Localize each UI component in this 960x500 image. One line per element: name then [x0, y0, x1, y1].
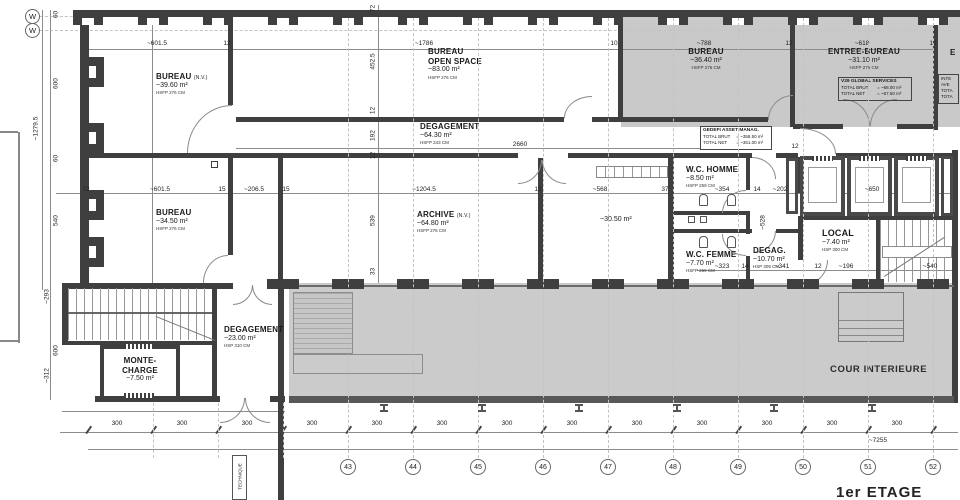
courtyard-south-wall [289, 396, 954, 403]
dim-label: 12 [814, 263, 821, 270]
grid-dashed-line [478, 18, 479, 458]
wall [228, 17, 233, 105]
dim-label: 33 [370, 252, 377, 292]
dim-label: 300 [892, 420, 903, 427]
dim-label: ~601.5 [150, 186, 170, 193]
pilaster [89, 237, 104, 267]
wall [672, 229, 752, 233]
elevator-car [808, 167, 837, 203]
dim-label: ~788 [697, 40, 712, 47]
room-area: ~7.50 m² [105, 375, 175, 383]
technique-room: TECHNIQUE [232, 455, 247, 500]
room-name: DEGAG. [753, 246, 786, 256]
wall [897, 124, 935, 129]
expansion-joint-marker [575, 404, 583, 412]
grid-bubble: 47 [600, 459, 616, 475]
toilet-icon [727, 236, 736, 248]
dim-label: ~202 [773, 186, 788, 193]
grid-dashed-line [413, 18, 414, 458]
dim-label: ~568 [593, 186, 608, 193]
pilaster [203, 10, 233, 25]
grid-dashed-line [218, 403, 219, 458]
site-boundary [0, 340, 18, 342]
dim-line [60, 432, 958, 433]
dim-label: 300 [307, 420, 318, 427]
corridor-wall [592, 117, 618, 122]
room-label-wc-homme: W.C. HOMME ~8.50 m² HSFP 259 CM [686, 165, 738, 188]
grid-bubble: 52 [925, 459, 941, 475]
dim-label: 539 [370, 201, 377, 241]
room-name: TECHNIQUE [238, 456, 243, 498]
room-name: MONTE- [105, 356, 175, 366]
room-ceiling: HSFP 243 CM [420, 140, 479, 145]
pilaster [89, 57, 104, 87]
corridor-wall [618, 117, 768, 122]
grid-bubble: 45 [470, 459, 486, 475]
room-area: ~64.30 m² [420, 132, 479, 140]
dim-label: ~528 [760, 203, 767, 243]
room-label-entree-bureau: ENTREE-BUREAU ~31.10 m² HSFP 276 CM [822, 47, 906, 70]
room-ceiling: HSFP 276 CM [417, 228, 471, 233]
room-name: E [950, 48, 956, 58]
wall [746, 157, 750, 190]
grid-bubble-west: W [25, 23, 40, 38]
door-arc [233, 285, 253, 305]
door-arc [203, 255, 228, 283]
courtyard-label: COUR INTERIEURE [830, 364, 927, 375]
room-name: LOCAL [822, 228, 854, 239]
dim-label: 452.5 [370, 42, 377, 82]
dim-chain-line [42, 10, 43, 290]
corridor-wall [568, 153, 672, 158]
dim-label: 300 [762, 420, 773, 427]
room-label-monte-charge: MONTE- CHARGE ~7.50 m² [105, 356, 175, 384]
pilaster [73, 10, 103, 25]
grid-bubble: 48 [665, 459, 681, 475]
room-name: OPEN SPACE [428, 57, 482, 67]
info-row-value: = ~351.00 m² [736, 140, 769, 146]
window-block [267, 279, 299, 289]
dim-label: 14 [741, 263, 748, 270]
dim-chain-line [50, 10, 51, 400]
corridor-wall [236, 117, 564, 122]
elevator-car [902, 167, 931, 203]
grid-dashed-line [543, 18, 544, 458]
column [211, 161, 218, 168]
room-area: ~7.40 m² [822, 239, 854, 247]
room-name: ENTREE-BUREAU [822, 47, 906, 57]
dim-label: ~1786 [415, 40, 433, 47]
room-label-degagement-mid: DEGAGEMENT ~64.30 m² HSFP 243 CM [420, 122, 479, 145]
room-label-bureau-sw: BUREAU ~34.50 m² HSFP 276 CM [156, 208, 191, 231]
grid-dashed-line [673, 18, 674, 458]
toilet-icon [727, 194, 736, 206]
room-name: BUREAU [428, 47, 482, 57]
room-name: BUREAU [676, 47, 736, 57]
dim-label: ~7255 [869, 437, 887, 444]
exterior-wall-west [80, 10, 89, 289]
dim-label: ~1279.5 [33, 109, 40, 149]
dim-label: ~206.5 [244, 186, 264, 193]
room-tag: (N.V.) [457, 213, 471, 219]
wall [228, 153, 233, 255]
stair-landing [882, 246, 952, 258]
dim-label: 2660 [513, 141, 527, 148]
dim-label: ~601.5 [147, 40, 167, 47]
room-area: ~64.80 m² [417, 220, 471, 228]
dim-label: 300 [112, 420, 123, 427]
dim-label: 15 [282, 186, 289, 193]
dim-line [88, 49, 938, 50]
grid-dashed-line [933, 18, 934, 458]
dim-label: 300 [697, 420, 708, 427]
door-arc [752, 157, 776, 179]
elevator-shaft-partial [786, 158, 798, 214]
wall [270, 396, 285, 402]
grid-dashed-line [153, 403, 154, 458]
elevator-car [855, 167, 884, 203]
expansion-joint-marker [770, 404, 778, 412]
wall [618, 17, 623, 120]
dim-label: ~293 [44, 277, 51, 317]
elevator-door [812, 156, 833, 161]
room-tag: (N.V.) [194, 75, 208, 81]
dim-label: 14 [753, 186, 760, 193]
room-label-degagement-sw: DEGAGEMENT ~23.00 m² HSP 310 CM [224, 325, 283, 348]
dim-label: 300 [177, 420, 188, 427]
dim-label: ~650 [865, 186, 880, 193]
expansion-joint-marker [380, 404, 388, 412]
toilet-icon [699, 194, 708, 206]
staircase-southwest [68, 288, 212, 340]
dim-label: ~323 [715, 263, 730, 270]
room-area: ~30.50 m² [600, 216, 632, 224]
grid-dashed-line [803, 18, 804, 458]
room-ceiling: HSP 300 CM [822, 247, 854, 252]
dim-label: 300 [372, 420, 383, 427]
grid-bubble: 49 [730, 459, 746, 475]
dim-label: 10 [610, 40, 617, 47]
grid-bubble: 44 [405, 459, 421, 475]
site-boundary [0, 131, 18, 133]
site-boundary [18, 132, 20, 343]
door-arc [564, 96, 592, 118]
elevator-door [859, 156, 880, 161]
tenant-info-box-v29: V29 GLOBAL SERVICES TOTAL BRUT= ~68.00 m… [838, 77, 912, 101]
dim-label: ~312 [44, 356, 51, 396]
dim-label: 37 [661, 186, 668, 193]
corridor-wall [88, 153, 232, 158]
kitchenette-counter [596, 166, 668, 178]
dim-label: 540 [53, 201, 60, 241]
dim-label: ~341 [775, 263, 790, 270]
info-row-label: TOTAL NET [841, 91, 877, 97]
room-ceiling: HSFP 276 CM [156, 226, 191, 231]
axis-dashed-line [40, 30, 956, 31]
dim-label: 12 [791, 143, 798, 150]
dim-label: 12 [370, 136, 377, 176]
room-label-local: LOCAL ~7.40 m² HSP 300 CM [822, 228, 854, 253]
room-ceiling: HSFP 276 CM [676, 65, 736, 70]
grid-dashed-line [283, 403, 284, 458]
pilaster [89, 190, 104, 220]
dim-label: ~540 [923, 263, 938, 270]
floor-plan: GEDEFI ASSET MANAG. TOTAL BRUT= ~358.50 … [0, 0, 960, 500]
grid-dashed-line [608, 18, 609, 458]
room-area: ~34.50 m² [156, 218, 191, 226]
room-name: CHARGE [105, 366, 175, 376]
dim-chain-line [378, 5, 379, 283]
pilaster [89, 123, 104, 153]
door-arc [542, 160, 566, 184]
sink-icon [700, 216, 707, 223]
room-label-bureau-ne: BUREAU ~36.40 m² HSFP 276 CM [676, 47, 736, 70]
wall [212, 283, 217, 402]
elevator-door [906, 156, 927, 161]
grid-bubble: 50 [795, 459, 811, 475]
room-area: ~39.60 m² [156, 82, 208, 90]
courtyard-structure-line [839, 335, 903, 336]
info-box-line: TOTA [941, 94, 956, 100]
dim-line [236, 148, 706, 149]
pilaster [138, 10, 168, 25]
dim-label: ~1204.5 [412, 186, 436, 193]
dim-label: ~354 [715, 186, 730, 193]
door-arc [800, 128, 836, 154]
grid-bubble-west: W [25, 9, 40, 24]
room-name: DEGAGEMENT [224, 325, 283, 335]
dim-label: 60 [53, 139, 60, 179]
dim-label: 600 [53, 64, 60, 104]
expansion-joint-marker [868, 404, 876, 412]
dim-label: 12 [785, 40, 792, 47]
courtyard-outline [293, 354, 423, 374]
grid-bubble: 43 [340, 459, 356, 475]
room-label-salle-3050: ~30.50 m² [600, 216, 632, 224]
monte-charge-door [124, 393, 154, 398]
room-ceiling: HSP 310 CM [224, 343, 283, 348]
info-row-value: = ~67.50 m² [877, 91, 909, 97]
room-area: ~23.00 m² [224, 335, 283, 343]
corridor-wall [672, 153, 752, 158]
dim-label: 72 [370, 0, 377, 29]
grid-dashed-line [868, 18, 869, 458]
dim-label: 300 [502, 420, 513, 427]
room-name: W.C. HOMME [686, 165, 738, 175]
room-label-archive: ARCHIVE (N.V.) ~64.80 m² HSFP 276 CM [417, 210, 471, 233]
tenant-info-box-gedefi: GEDEFI ASSET MANAG. TOTAL BRUT= ~358.50 … [700, 126, 772, 150]
info-row-label: TOTAL NET [703, 140, 736, 146]
door-arc [187, 105, 232, 153]
dim-label: 300 [567, 420, 578, 427]
dim-label: 60 [53, 0, 60, 35]
courtyard-structure-line [839, 320, 903, 321]
expansion-joint-marker [673, 404, 681, 412]
room-area: ~8.50 m² [686, 175, 738, 183]
dim-label: 12 [534, 186, 541, 193]
grid-bubble: 51 [860, 459, 876, 475]
elevator-shaft [800, 156, 845, 216]
grid-dashed-line [348, 18, 349, 458]
monte-charge-door [124, 344, 154, 349]
courtyard-structure-line [839, 328, 903, 329]
dim-label: 300 [632, 420, 643, 427]
dim-label: ~196 [839, 263, 854, 270]
wall [776, 229, 798, 233]
tenant-info-box-edge: INTE AVE TOTA TOTA [938, 74, 959, 104]
room-area: ~31.10 m² [822, 57, 906, 65]
room-name: BUREAU [156, 208, 191, 218]
elevator-shaft-partial [941, 156, 953, 216]
sink-icon [688, 216, 695, 223]
room-area: ~36.40 m² [676, 57, 736, 65]
room-label-bureau-nw: BUREAU (N.V.) ~39.60 m² HSFP 276 CM [156, 72, 208, 95]
expansion-joint-marker [478, 404, 486, 412]
dim-label: 300 [827, 420, 838, 427]
room-ceiling: HSFP 276 CM [156, 90, 208, 95]
dim-chain-line [152, 10, 153, 285]
toilet-icon [699, 236, 708, 248]
dim-label: 300 [242, 420, 253, 427]
room-name: ARCHIVE [417, 210, 454, 219]
floor-title: 1er ETAGE [836, 484, 922, 500]
wall [278, 153, 283, 283]
dim-label: 15 [218, 186, 225, 193]
grid-dashed-line [738, 18, 739, 458]
room-name: W.C. FEMME [686, 250, 736, 260]
courtyard-grille [293, 292, 353, 354]
dim-label: 600 [53, 331, 60, 371]
room-ceiling: HSFP 259 CM [686, 183, 738, 188]
room-label-open-space: BUREAU OPEN SPACE ~83.00 m² HSFP 276 CM [428, 47, 482, 80]
stair-rail [68, 312, 212, 314]
room-ceiling: HSFP 276 CM [428, 75, 482, 80]
pilaster [268, 10, 298, 25]
room-name: DEGAGEMENT [420, 122, 479, 132]
room-ceiling: HSFP 276 CM [822, 65, 906, 70]
dim-label: 300 [437, 420, 448, 427]
dim-label: 12 [223, 40, 230, 47]
room-label-edge: E [950, 48, 956, 58]
room-area: ~83.00 m² [428, 66, 482, 74]
grid-bubble: 46 [535, 459, 551, 475]
room-name: BUREAU [156, 72, 191, 81]
